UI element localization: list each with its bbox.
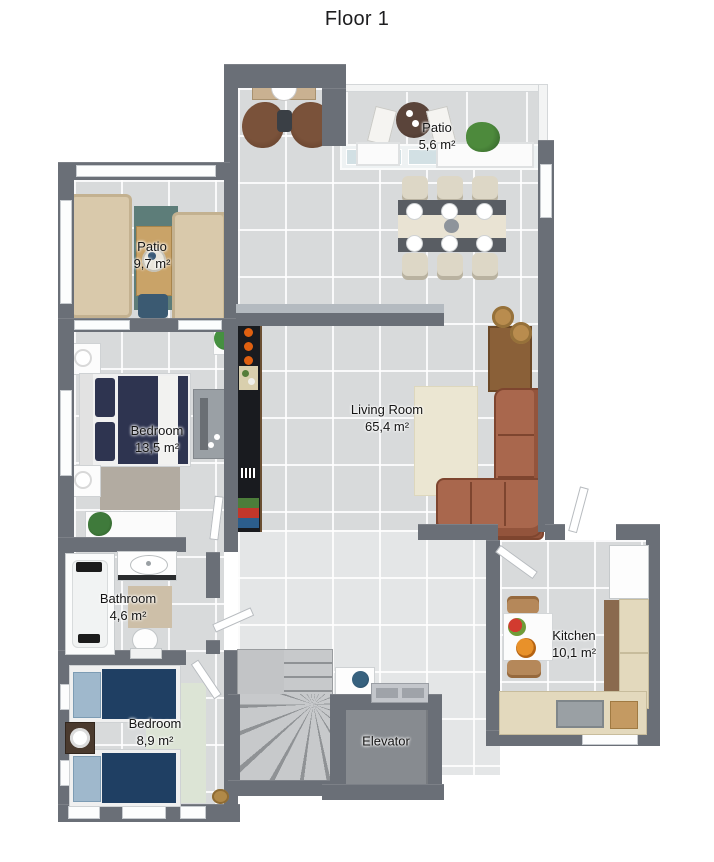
label-kitchen: Kitchen10,1 m²	[552, 628, 596, 662]
kitchen-chair-bottom	[507, 660, 541, 678]
wall	[418, 524, 498, 540]
kitchen-sink	[556, 700, 604, 728]
window	[76, 165, 216, 177]
wall	[486, 540, 500, 740]
nightstand-lamp	[74, 349, 92, 367]
stair-winder	[238, 694, 332, 780]
plate	[407, 204, 422, 219]
wall	[322, 784, 444, 800]
elevator-door	[372, 684, 428, 702]
patio-ottoman	[138, 294, 168, 318]
single-bed-bottom	[70, 750, 180, 806]
label-bathroom: Bathroom4,6 m²	[100, 591, 156, 625]
basket	[510, 322, 532, 344]
plate	[477, 204, 492, 219]
window	[180, 806, 206, 819]
fridge	[610, 546, 648, 598]
hall-sideboard	[236, 316, 262, 532]
patio-table-dot1	[406, 110, 413, 117]
wall	[646, 524, 660, 746]
dining-chair	[437, 253, 463, 280]
single-bed-top	[70, 666, 180, 722]
nightstand-lamp	[74, 471, 92, 489]
floor-title: Floor 1	[0, 8, 714, 31]
dining-chair	[472, 253, 498, 280]
label-patio-left: Patio9,7 m²	[134, 239, 171, 273]
kitchen-chair-top	[507, 596, 539, 614]
floor-plan: Floor 1	[0, 0, 714, 862]
fruit-bowl-apples	[508, 618, 526, 636]
kitchen-counter-bottom	[500, 692, 646, 734]
window	[60, 200, 72, 304]
dining-chair	[472, 176, 498, 203]
window	[122, 806, 166, 819]
wall	[322, 88, 346, 146]
wall	[206, 552, 220, 598]
patio-plant	[466, 122, 500, 152]
wall	[545, 524, 565, 540]
half-wall	[236, 304, 444, 326]
window	[68, 806, 100, 819]
wall	[224, 64, 346, 88]
window	[60, 390, 72, 476]
wall	[428, 694, 442, 786]
window	[178, 320, 222, 330]
patio-planter-left	[356, 142, 400, 166]
toilet	[130, 628, 160, 658]
dining-centerpiece	[444, 219, 459, 233]
label-elevator: Elevator	[362, 734, 410, 751]
kitchen-counter-wood	[604, 600, 620, 704]
staircase	[238, 650, 332, 780]
living-kitchen-door	[568, 486, 589, 533]
label-bedroom-2: Bedroom8,9 m²	[129, 716, 182, 750]
label-patio-top: Patio5,6 m²	[419, 120, 456, 154]
basket	[492, 306, 514, 328]
dining-chair	[437, 176, 463, 203]
wall	[228, 694, 240, 794]
label-living-room: Living Room65,4 m²	[351, 402, 423, 436]
plate	[442, 204, 457, 219]
dining-chair	[402, 253, 428, 280]
bedroom2-lamp	[70, 728, 90, 748]
dining-chair	[402, 176, 428, 203]
bathroom-vanity	[118, 552, 176, 580]
bedroom1-rug	[100, 464, 180, 510]
label-bedroom-1: Bedroom13,5 m²	[131, 423, 184, 457]
plate	[477, 236, 492, 251]
window	[74, 320, 130, 330]
fruit-bowl-oranges	[516, 638, 536, 658]
tv-unit	[194, 390, 226, 458]
side-table	[277, 110, 292, 132]
hall-console-bowl	[352, 671, 369, 688]
patio-railing-right	[538, 84, 548, 142]
wall	[206, 640, 220, 654]
patio-sofa-left	[64, 194, 132, 318]
wall	[58, 537, 186, 552]
patio-railing-top	[344, 84, 544, 92]
patio-side-door	[540, 164, 552, 218]
wall	[330, 694, 346, 786]
wall	[228, 780, 334, 796]
floor-pot	[212, 789, 229, 804]
cutting-board	[610, 701, 638, 729]
plate	[442, 236, 457, 251]
plate	[407, 236, 422, 251]
patio-sofa-right	[172, 212, 232, 330]
